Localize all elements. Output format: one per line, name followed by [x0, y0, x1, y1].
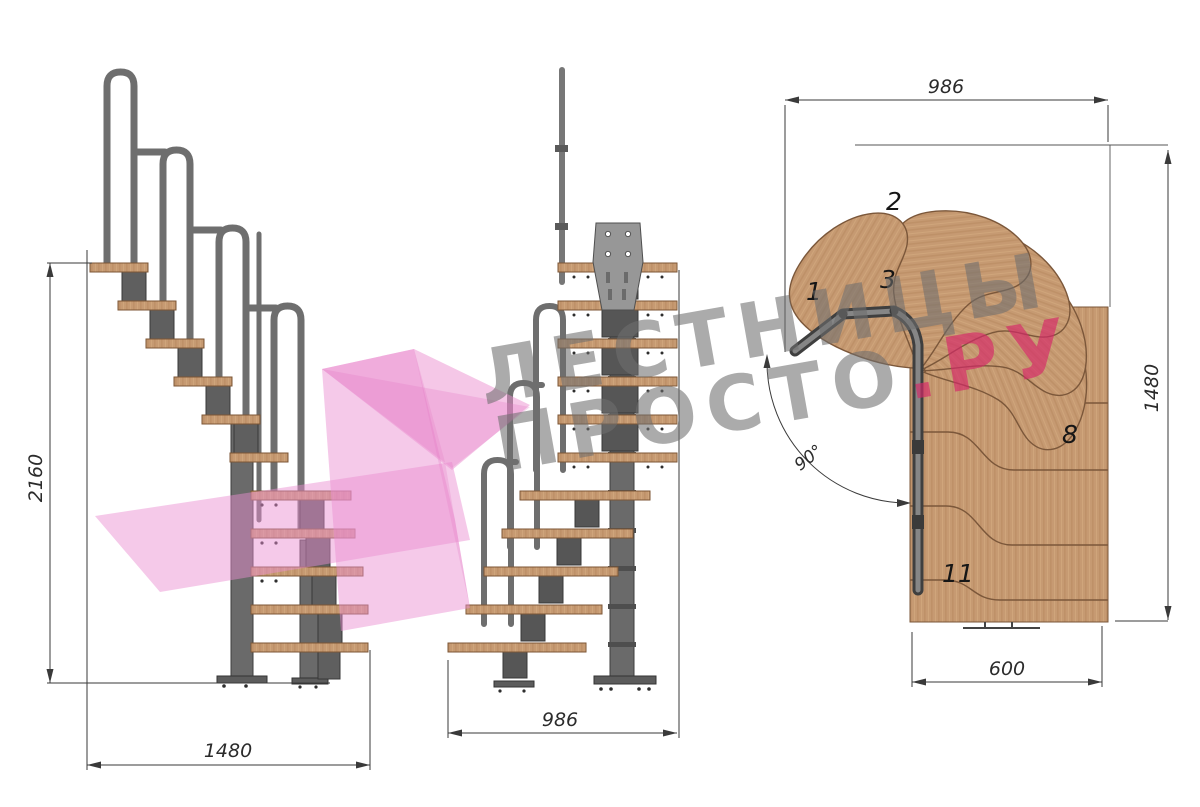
top-plan-view: 986 1480 600 90° 1 2 3 8: [764, 76, 1172, 687]
post-base-flange: [494, 681, 534, 687]
dim-plan-flight-width-label: 600: [989, 658, 1025, 680]
dim-plan-height-label: 1480: [1141, 364, 1163, 412]
dim-plan-angle-label: 90°: [791, 441, 827, 475]
step-label-8: 8: [1062, 420, 1078, 449]
dim-side-height-label: 2160: [25, 454, 47, 502]
base-bolts: [498, 687, 650, 692]
pole-base-flange: [217, 676, 267, 683]
rod-collar: [555, 145, 568, 152]
dim-front-width-label: 986: [542, 709, 578, 731]
step-label-11: 11: [942, 559, 974, 588]
mounting-plate: [593, 223, 643, 310]
rod-collar: [555, 223, 568, 230]
dim-plan-width-label: 986: [928, 76, 964, 98]
drawing-canvas: 2160 1480: [0, 0, 1200, 807]
side-elevation-view: 2160 1480: [25, 72, 370, 770]
step-label-3: 3: [880, 265, 896, 294]
technical-drawing: 2160 1480: [0, 0, 1200, 807]
step-label-1: 1: [806, 277, 822, 306]
plan-pole-base: [963, 622, 1040, 628]
pole-base-flange: [594, 676, 656, 684]
step-label-2: 2: [886, 187, 902, 216]
dimension-side-height: [47, 263, 93, 683]
angle-arc-90: [764, 354, 912, 507]
dim-side-width-label: 1480: [204, 740, 252, 762]
